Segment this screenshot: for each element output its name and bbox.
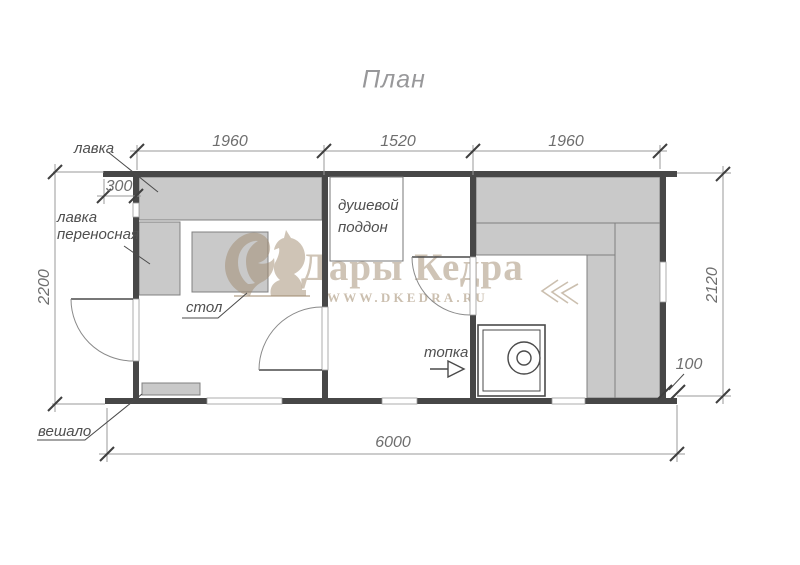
label-portable-bench-line1: лавка [57, 209, 139, 226]
wall-right-seg1 [660, 171, 666, 262]
wall-right-seg2 [660, 302, 666, 404]
doors [71, 257, 470, 370]
door-arc-room1-room2 [259, 307, 322, 370]
label-portable-bench: лавка переносная [57, 209, 139, 243]
door-arc-exterior [71, 299, 133, 361]
window-bottom-room2 [382, 398, 417, 404]
stove-outer [478, 325, 545, 396]
dim-top-right: 1960 [548, 133, 584, 151]
page-title: План [362, 66, 426, 95]
wall-bottom-seg3 [417, 398, 552, 404]
label-bench: лавка [74, 140, 114, 157]
wall-partition1-seg2 [322, 370, 328, 398]
wall-bottom-seg2 [282, 398, 382, 404]
doorway-room2-room3 [470, 257, 476, 315]
dim-bottom-total: 6000 [375, 434, 411, 452]
dim-left-offset: 300 [106, 178, 133, 196]
label-shower-line2: поддон [338, 217, 399, 239]
firebox-arrow-icon [430, 361, 464, 377]
dim-top-left: 1960 [212, 133, 248, 151]
dim-right-offset: 100 [676, 356, 703, 374]
label-table: стол [186, 299, 222, 316]
dimension-lines [52, 145, 731, 462]
window-bottom-room3 [552, 398, 585, 404]
doorway-exterior [133, 299, 139, 361]
doorway-room1-room2 [322, 307, 328, 370]
dim-left-height: 2200 [36, 269, 54, 305]
wall-top [103, 171, 677, 177]
dim-right-height: 2120 [704, 267, 722, 303]
ext-lines-left [52, 172, 105, 404]
dim-top-middle: 1520 [380, 133, 416, 151]
wall-bottom-seg1 [105, 398, 207, 404]
stove [478, 325, 545, 396]
floor-plan-drawing: Дары Кедра WWW.DKEDRA.RU [0, 0, 800, 565]
window-bottom-room1 [207, 398, 282, 404]
label-portable-bench-line2: переносная [57, 226, 139, 243]
label-shower-line1: душевой [338, 195, 399, 217]
label-firebox: топка [424, 344, 468, 361]
door-arc-room2-room3 [412, 257, 470, 315]
dimension-ticks [48, 144, 730, 461]
label-shower-tray: душевой поддон [338, 195, 399, 239]
label-hanger: вешало [38, 423, 91, 440]
window-right-wall [660, 262, 666, 302]
wall-partition1-seg1 [322, 177, 328, 307]
wall-partition2-seg1 [470, 177, 476, 257]
wall-partition2-seg2 [470, 315, 476, 398]
